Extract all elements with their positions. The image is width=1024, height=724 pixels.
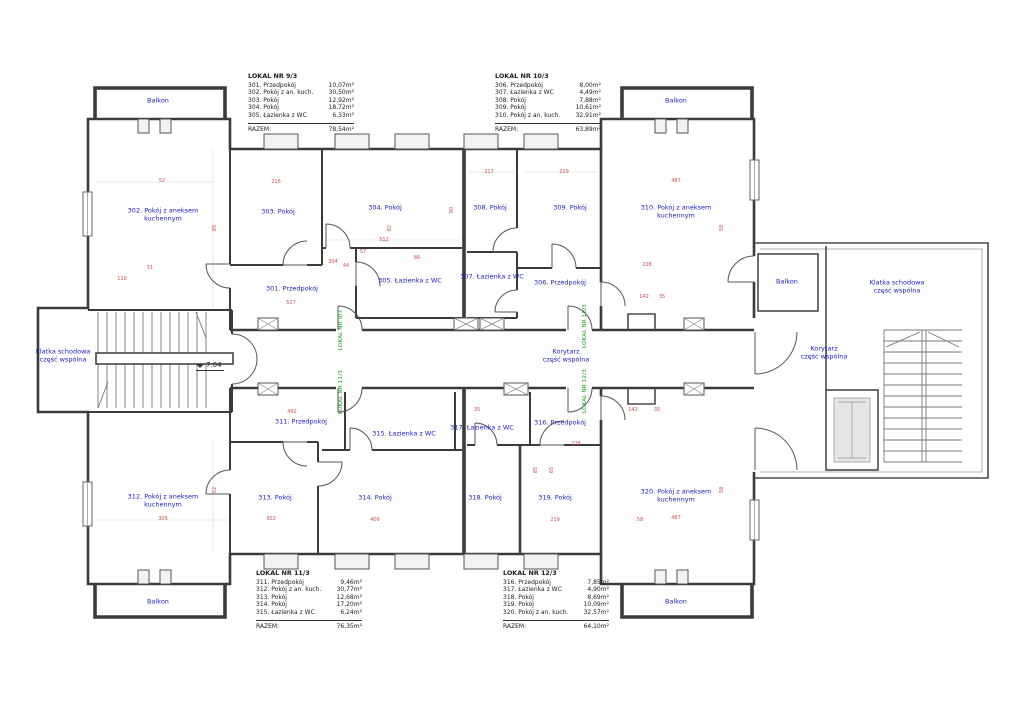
level-value: 7.04 [206, 361, 222, 369]
legend-row: 303. Pokój12,92m² [248, 97, 354, 105]
legend-row: 307. Łazienka z WC4,49m² [495, 89, 601, 97]
legend-row: 309. Pokój10,61m² [495, 104, 601, 112]
legend-lokal-9-3: LOKAL NR 9/3 301. Przedpokój10,07m²302. … [248, 73, 354, 133]
building-outline [38, 119, 754, 584]
corridor-walls [230, 330, 754, 388]
lower-apartment-walls [230, 388, 655, 554]
legend-row: 308. Pokój7,88m² [495, 97, 601, 105]
legend-total-value: 76,35m² [337, 623, 362, 631]
legend-row: 318. Pokój8,69m² [503, 594, 609, 602]
legend-lokal-11-3: LOKAL NR 11/3 311. Przedpokój9,46m²312. … [256, 570, 362, 630]
legend-row: 315. Łazienka z WC6,24m² [256, 609, 362, 617]
legend-rows: 306. Przedpokój8,00m²307. Łazienka z WC4… [495, 82, 601, 120]
level-marker: 7.04 [196, 361, 224, 371]
legend-rows: 316. Przedpokój7,85m²317. Łazienka z WC4… [503, 579, 609, 617]
legend-total-value: 64,10m² [584, 623, 609, 631]
legend-row: 306. Przedpokój8,00m² [495, 82, 601, 90]
legend-rows: 301. Przedpokój10,07m²302. Pokój z an. k… [248, 82, 354, 120]
legend-lokal-10-3: LOKAL NR 10/3 306. Przedpokój8,00m²307. … [495, 73, 601, 133]
stair-wing-outline [754, 243, 988, 478]
window-symbols [83, 160, 759, 540]
legend-row: 316. Przedpokój7,85m² [503, 579, 609, 587]
legend-total: RAZEM: 78,54m² [248, 123, 354, 134]
legend-row: 304. Pokój18,72m² [248, 104, 354, 112]
legend-row: 320. Pokój z an. kuch.32,57m² [503, 609, 609, 617]
legend-total-label: RAZEM: [503, 623, 526, 631]
legend-row: 313. Pokój12,68m² [256, 594, 362, 602]
legend-row: 302. Pokój z an. kuch.30,50m² [248, 89, 354, 97]
legend-total-value: 78,54m² [329, 126, 354, 134]
legend-lokal-12-3: LOKAL NR 12/3 316. Przedpokój7,85m²317. … [503, 570, 609, 630]
legend-total-label: RAZEM: [256, 623, 279, 631]
legend-total-value: 63,89m² [576, 126, 601, 134]
legend-total-label: RAZEM: [248, 126, 271, 134]
legend-total: RAZEM: 64,10m² [503, 620, 609, 631]
floor-plan-page: 301. Przedpokój302. Pokój z aneksem kuch… [0, 0, 1024, 724]
legend-row: 301. Przedpokój10,07m² [248, 82, 354, 90]
right-staircase [884, 330, 962, 462]
legend-title: LOKAL NR 12/3 [503, 570, 609, 578]
legend-total: RAZEM: 76,35m² [256, 620, 362, 631]
legend-row: 317. Łazienka z WC4,90m² [503, 586, 609, 594]
legend-total: RAZEM: 63,89m² [495, 123, 601, 134]
legend-row: 312. Pokój z an. kuch.30,77m² [256, 586, 362, 594]
left-staircase [96, 312, 233, 408]
level-triangle-icon [196, 364, 204, 372]
legend-row: 319. Pokój10,09m² [503, 601, 609, 609]
legend-title: LOKAL NR 9/3 [248, 73, 354, 81]
wing-balcony [758, 254, 818, 311]
legend-row: 305. Łazienka z WC6,33m² [248, 112, 354, 120]
upper-apartment-walls [230, 149, 655, 330]
dimension-lines [96, 150, 598, 552]
window-bay-symbols [138, 119, 688, 584]
legend-row: 311. Przedpokój9,46m² [256, 579, 362, 587]
door-swings [206, 224, 797, 494]
legend-title: LOKAL NR 11/3 [256, 570, 362, 578]
legend-rows: 311. Przedpokój9,46m²312. Pokój z an. ku… [256, 579, 362, 617]
legend-row: 310. Pokój z an. kuch.32,91m² [495, 112, 601, 120]
legend-row: 314. Pokój17,20m² [256, 601, 362, 609]
legend-title: LOKAL NR 10/3 [495, 73, 601, 81]
legend-total-label: RAZEM: [495, 126, 518, 134]
